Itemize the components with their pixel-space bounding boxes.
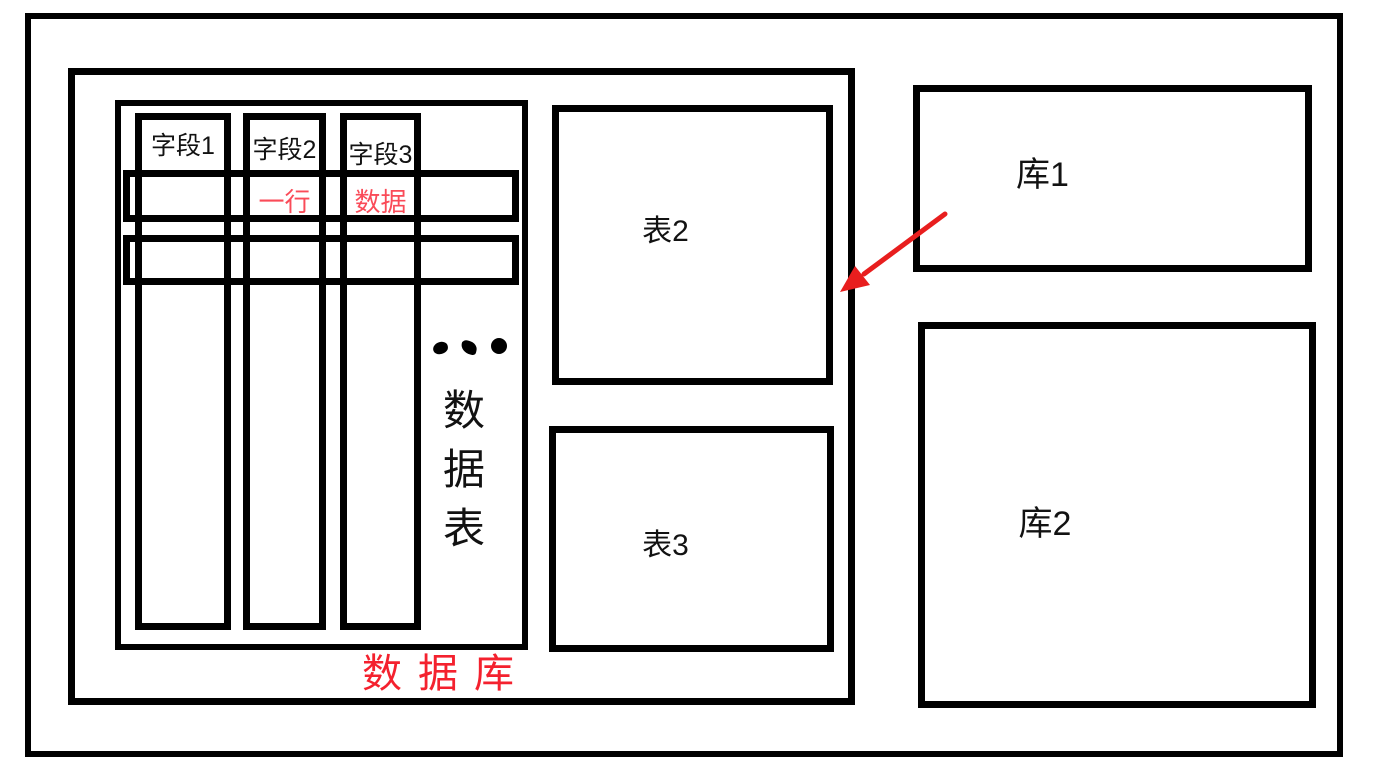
- data-table-box: 字段1 字段2 字段3 一行 数据 数: [115, 100, 528, 650]
- ellipsis-dot: [432, 341, 449, 356]
- table3-box: 表3: [549, 426, 834, 652]
- database-box: 字段1 字段2 字段3 一行 数据 数: [68, 68, 855, 705]
- ellipsis-icon: [433, 334, 513, 362]
- column-field2-label: 字段2: [250, 137, 319, 165]
- ellipsis-dot: [460, 339, 479, 355]
- vertical-label-char: 表: [443, 508, 485, 550]
- db2-box: 库2: [918, 322, 1316, 708]
- data-row-2: [123, 235, 519, 285]
- vertical-label-char: 数: [443, 390, 485, 432]
- vertical-label-char: 据: [443, 449, 485, 491]
- column-field3-label: 字段3: [347, 142, 414, 170]
- table2-label: 表2: [559, 112, 826, 378]
- table2-box: 表2: [552, 105, 833, 385]
- data-table-vertical-label: 数 据 表: [441, 390, 487, 550]
- database-label: 数据库: [362, 654, 530, 694]
- db2-label: 库2: [925, 329, 1309, 701]
- outer-frame: 字段1 字段2 字段3 一行 数据 数: [25, 13, 1343, 757]
- db1-box: 库1: [913, 85, 1312, 272]
- column-field1-label: 字段1: [142, 133, 224, 161]
- red-arrow-icon: [828, 198, 958, 313]
- row-annotation-one-row: 一行: [243, 188, 326, 216]
- table3-label: 表3: [556, 433, 827, 645]
- db1-label: 库1: [920, 92, 1305, 265]
- diagram-canvas: 字段1 字段2 字段3 一行 数据 数: [0, 0, 1375, 778]
- row-annotation-data: 数据: [340, 188, 421, 216]
- ellipsis-dot: [491, 338, 507, 354]
